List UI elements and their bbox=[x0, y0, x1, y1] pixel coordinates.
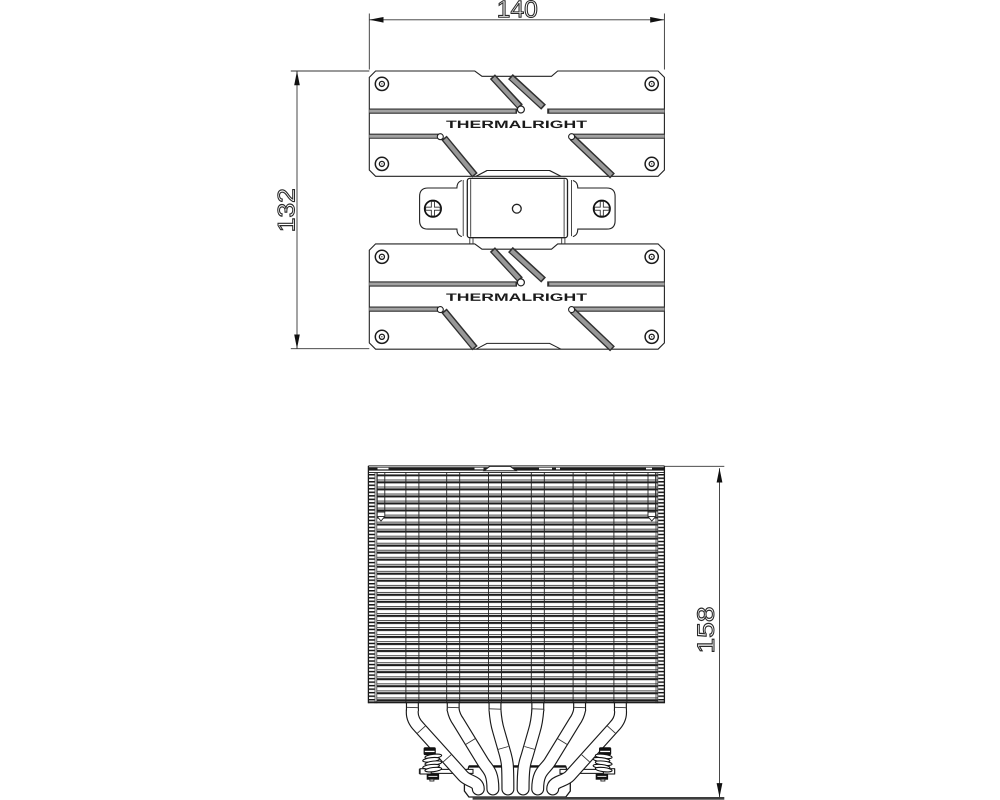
svg-text:158: 158 bbox=[693, 607, 720, 654]
svg-text:THERMALRIGHT: THERMALRIGHT bbox=[446, 119, 588, 131]
svg-text:THERMALRIGHT: THERMALRIGHT bbox=[446, 292, 588, 304]
